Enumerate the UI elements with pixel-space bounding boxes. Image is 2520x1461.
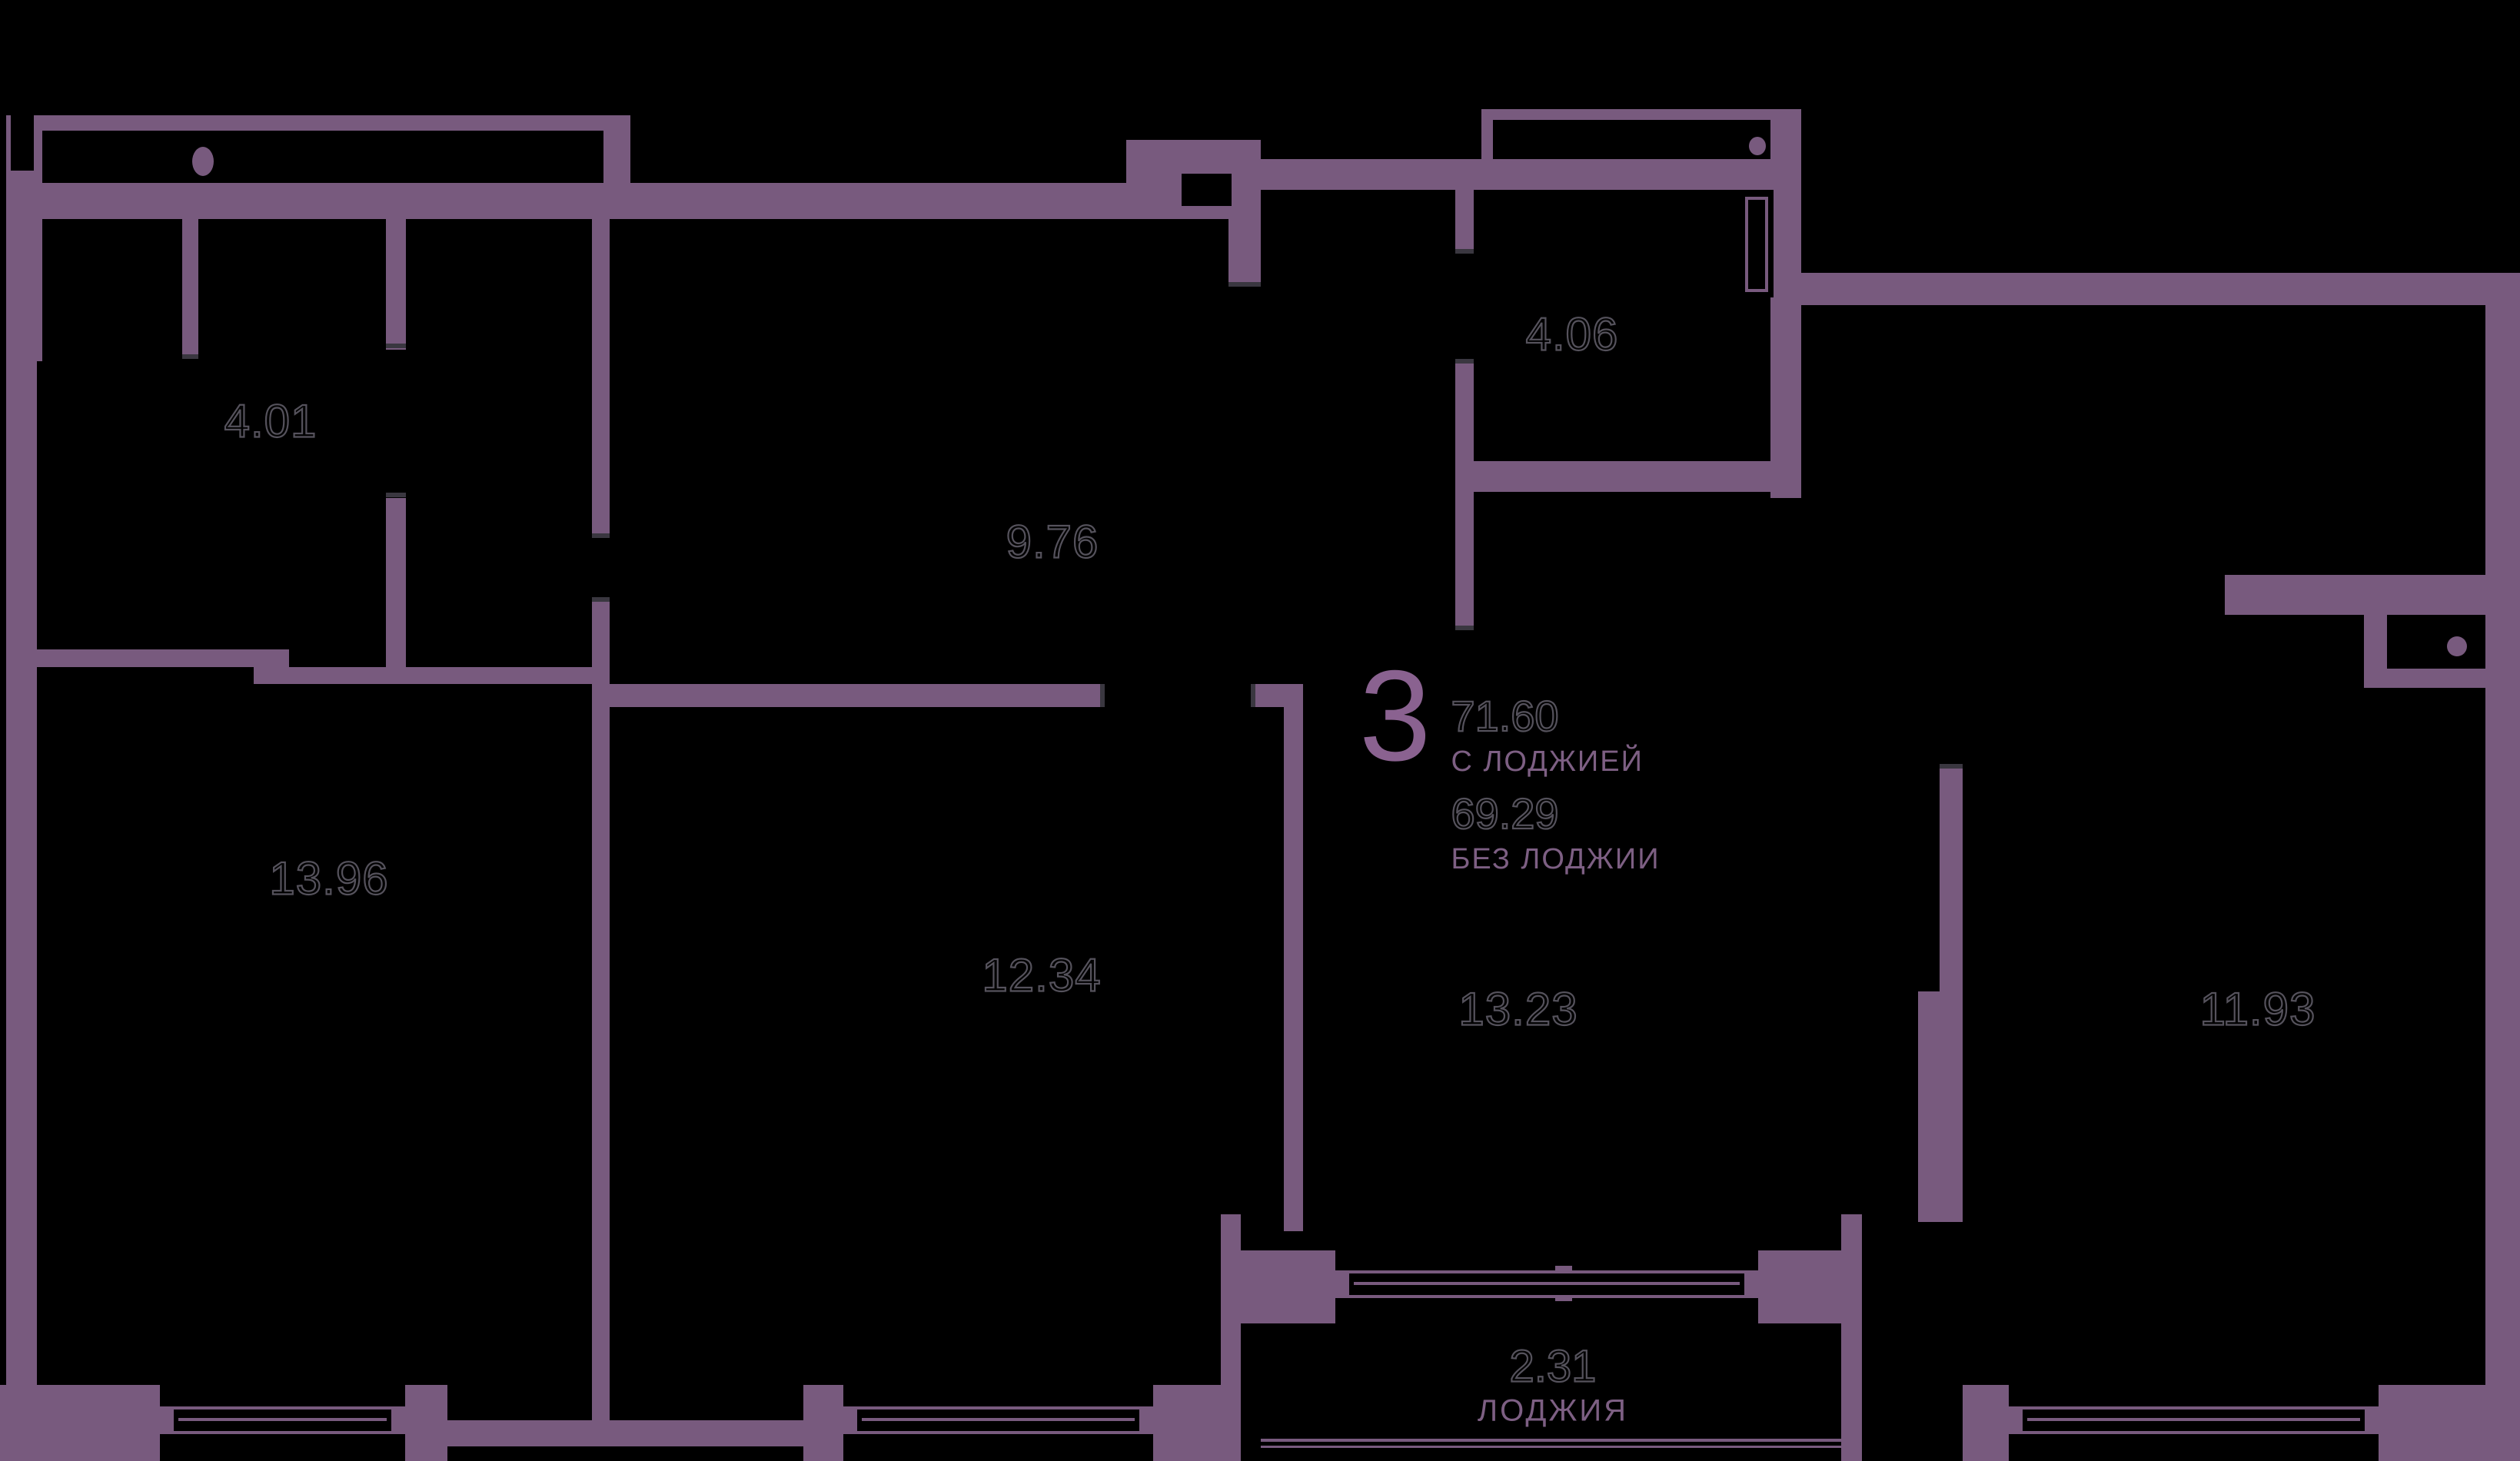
window [843,1406,1153,1434]
duct-inset-frame [1745,197,1768,292]
wall-segment [1228,219,1261,287]
wall-segment [1940,769,1963,1222]
door-dot [192,147,214,176]
loggia-edge-line [1261,1439,1860,1448]
wall-segment [0,1385,160,1461]
wall-segment [405,1385,447,1461]
wall-segment [386,219,406,350]
door-jamb [1940,764,1963,769]
wall-segment [1455,364,1474,461]
wall-segment [182,219,198,359]
window-glazing-line [1354,1282,1740,1285]
wall-segment [42,183,1261,219]
wall-segment [1261,159,1770,190]
wall-segment [1455,190,1474,254]
wall-notch [1182,174,1232,206]
wall-segment [1153,1385,1221,1461]
door-jamb [592,533,610,538]
wall-segment [447,1420,803,1446]
wall-segment [2364,615,2387,688]
corridor-9-76-area-label: 9.76 [1006,516,1099,569]
room-4-06-area-label: 4.06 [1526,308,1619,361]
door-jamb [592,597,610,602]
wall-segment [2225,575,2485,615]
room-4-01-area-label: 4.01 [224,395,317,448]
wall-segment [592,219,610,538]
wall-segment [1241,1250,1335,1323]
wall-segment [2485,273,2520,1385]
loggia-name-label: ЛОДЖИЯ [1478,1394,1628,1429]
room-11-93-area-label: 11.93 [2200,983,2316,1036]
wall-segment [1455,492,1474,630]
window [1335,1270,1758,1298]
wall-segment [2379,1385,2520,1461]
door-jamb [1455,626,1474,630]
door-dot [1749,137,1766,155]
wall-segment [803,1385,843,1461]
area-with-loggia-label: С ЛОДЖИЕЙ [1451,745,1660,779]
window-glazing-line [178,1418,387,1421]
wall-segment [1801,273,2520,305]
area-without-loggia-label: БЕЗ ЛОДЖИИ [1451,843,1660,876]
door-jamb [182,354,198,359]
wall-segment [6,361,37,1385]
door-jamb [1228,282,1261,287]
apartment-areas: 71.60 С ЛОДЖИЕЙ 69.29 БЕЗ ЛОДЖИИ [1451,695,1660,890]
door-jamb [1100,684,1105,707]
wall-segment [1284,684,1303,1231]
door-jamb [386,344,406,348]
room-12-34-area-label: 12.34 [982,949,1101,1002]
room-13-96-area-label: 13.96 [269,852,388,905]
rooms-count: 3 [1359,655,1431,890]
window [2009,1406,2379,1434]
wall-segment [386,498,406,667]
window [160,1406,405,1434]
wall-segment [592,602,610,1437]
wall-segment [1221,1214,1241,1461]
door-jamb [386,493,406,497]
wall-segment [1770,109,1801,498]
wall-segment [1481,120,1493,166]
wall-segment [1455,461,1770,492]
wall-segment [2387,669,2485,688]
window-glazing-line [862,1418,1135,1421]
door-dot [2447,636,2467,656]
loggia-area-label: 2.31 [1510,1341,1597,1393]
apartment-info: 3 71.60 С ЛОДЖИЕЙ 69.29 БЕЗ ЛОДЖИИ [1359,655,1661,890]
wall-segment [1255,684,1284,707]
door-jamb [1455,359,1474,364]
wall-segment [6,115,630,131]
wall-segment [1918,991,1940,1222]
wall-segment [1963,1385,2009,1461]
window-glazing-line [2027,1418,2360,1421]
wall-segment [254,667,609,684]
door-jamb [1251,684,1255,707]
area-without-loggia: 69.29 [1451,792,1660,835]
room-13-23-area-label: 13.23 [1458,983,1577,1036]
wall-segment [602,684,1105,707]
floor-plan: 3 71.60 С ЛОДЖИЕЙ 69.29 БЕЗ ЛОДЖИИ 2.31 … [0,0,2520,1461]
wall-notch [11,115,34,171]
door-jamb [1455,249,1474,254]
wall-segment [14,649,289,667]
area-with-loggia: 71.60 [1451,695,1660,738]
wall-segment [1841,1214,1862,1461]
wall-segment [1481,109,1801,120]
